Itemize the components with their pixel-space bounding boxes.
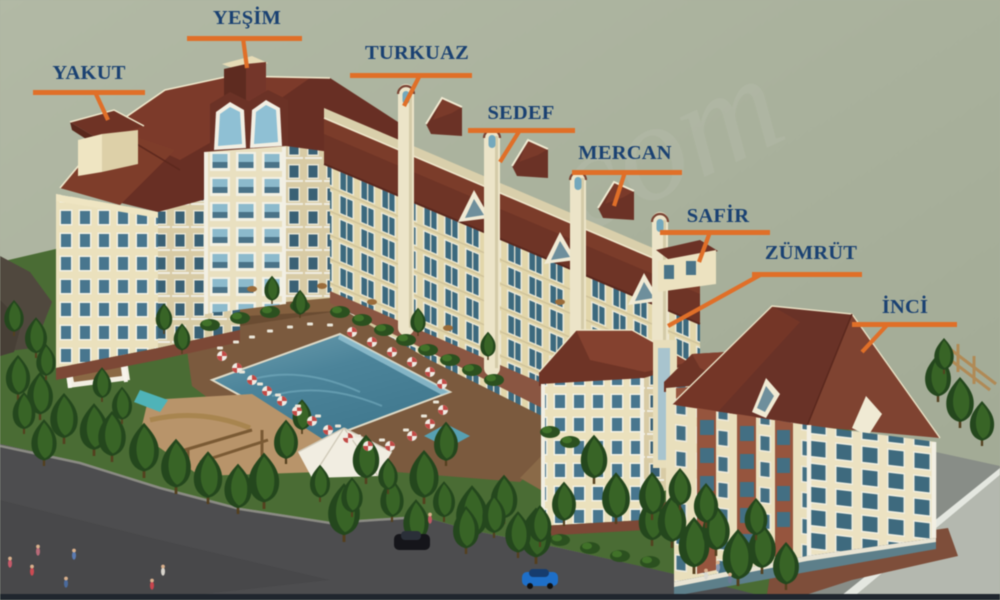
svg-text:İNCİ: İNCİ [882,294,928,318]
svg-text:TURKUAZ: TURKUAZ [365,42,469,64]
svg-text:MERCAN: MERCAN [578,142,671,164]
svg-text:YAKUT: YAKUT [52,62,125,84]
svg-text:SAFİR: SAFİR [687,203,750,227]
svg-text:ZÜMRÜT: ZÜMRÜT [765,241,857,264]
svg-text:SEDEF: SEDEF [487,102,554,124]
svg-text:YEŞİM: YEŞİM [213,5,281,29]
